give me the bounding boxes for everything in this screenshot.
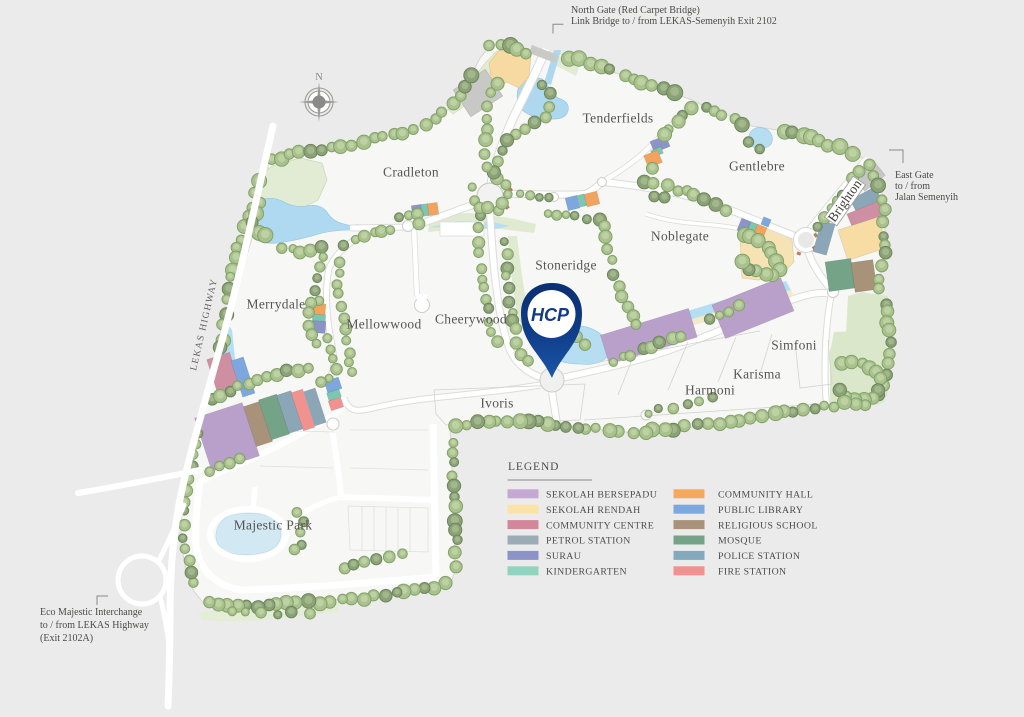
svg-text:Jalan Semenyih: Jalan Semenyih: [895, 192, 958, 203]
svg-text:Gentlebre: Gentlebre: [729, 159, 785, 174]
svg-text:Stoneridge: Stoneridge: [535, 258, 597, 273]
svg-text:(Exit 2102A): (Exit 2102A): [40, 633, 93, 644]
svg-text:HCP: HCP: [531, 305, 570, 325]
svg-text:LEGEND: LEGEND: [508, 461, 559, 473]
svg-text:Eco Majestic Interchange: Eco Majestic Interchange: [40, 607, 143, 618]
svg-text:Harmoni: Harmoni: [685, 383, 735, 398]
svg-text:RELIGIOUS SCHOOL: RELIGIOUS SCHOOL: [718, 520, 818, 531]
svg-text:East Gate: East Gate: [895, 170, 934, 181]
svg-text:Merrydale: Merrydale: [247, 297, 306, 312]
svg-text:Link Bridge to / from LEKAS-Se: Link Bridge to / from LEKAS-Semenyih Exi…: [571, 16, 777, 27]
svg-text:Tenderfields: Tenderfields: [583, 111, 654, 126]
svg-text:Mellowwood: Mellowwood: [347, 317, 422, 332]
svg-text:Cheerywood: Cheerywood: [435, 312, 507, 327]
svg-text:COMMUNITY HALL: COMMUNITY HALL: [718, 490, 813, 501]
svg-text:Simfoni: Simfoni: [771, 338, 817, 353]
svg-text:Noblegate: Noblegate: [651, 229, 709, 244]
svg-text:FIRE STATION: FIRE STATION: [718, 567, 787, 578]
svg-text:to / from LEKAS Highway: to / from LEKAS Highway: [40, 620, 149, 631]
svg-text:Majestic Park: Majestic Park: [234, 518, 313, 533]
svg-text:SEKOLAH RENDAH: SEKOLAH RENDAH: [546, 505, 641, 516]
svg-text:N: N: [315, 72, 323, 83]
svg-text:North Gate (Red Carpet Bridge): North Gate (Red Carpet Bridge): [571, 5, 700, 16]
svg-text:COMMUNITY CENTRE: COMMUNITY CENTRE: [546, 520, 654, 531]
svg-text:SURAU: SURAU: [546, 551, 581, 562]
svg-text:KINDERGARTEN: KINDERGARTEN: [546, 567, 627, 578]
svg-text:Cradleton: Cradleton: [383, 165, 439, 180]
svg-text:POLICE STATION: POLICE STATION: [718, 551, 800, 562]
svg-text:PETROL STATION: PETROL STATION: [546, 536, 631, 547]
svg-text:SEKOLAH BERSEPADU: SEKOLAH BERSEPADU: [546, 490, 657, 501]
svg-text:MOSQUE: MOSQUE: [718, 536, 762, 547]
svg-text:Ivoris: Ivoris: [480, 396, 513, 411]
svg-text:PUBLIC LIBRARY: PUBLIC LIBRARY: [718, 505, 803, 516]
svg-text:to / from: to / from: [895, 181, 930, 192]
svg-text:Karisma: Karisma: [733, 367, 781, 382]
